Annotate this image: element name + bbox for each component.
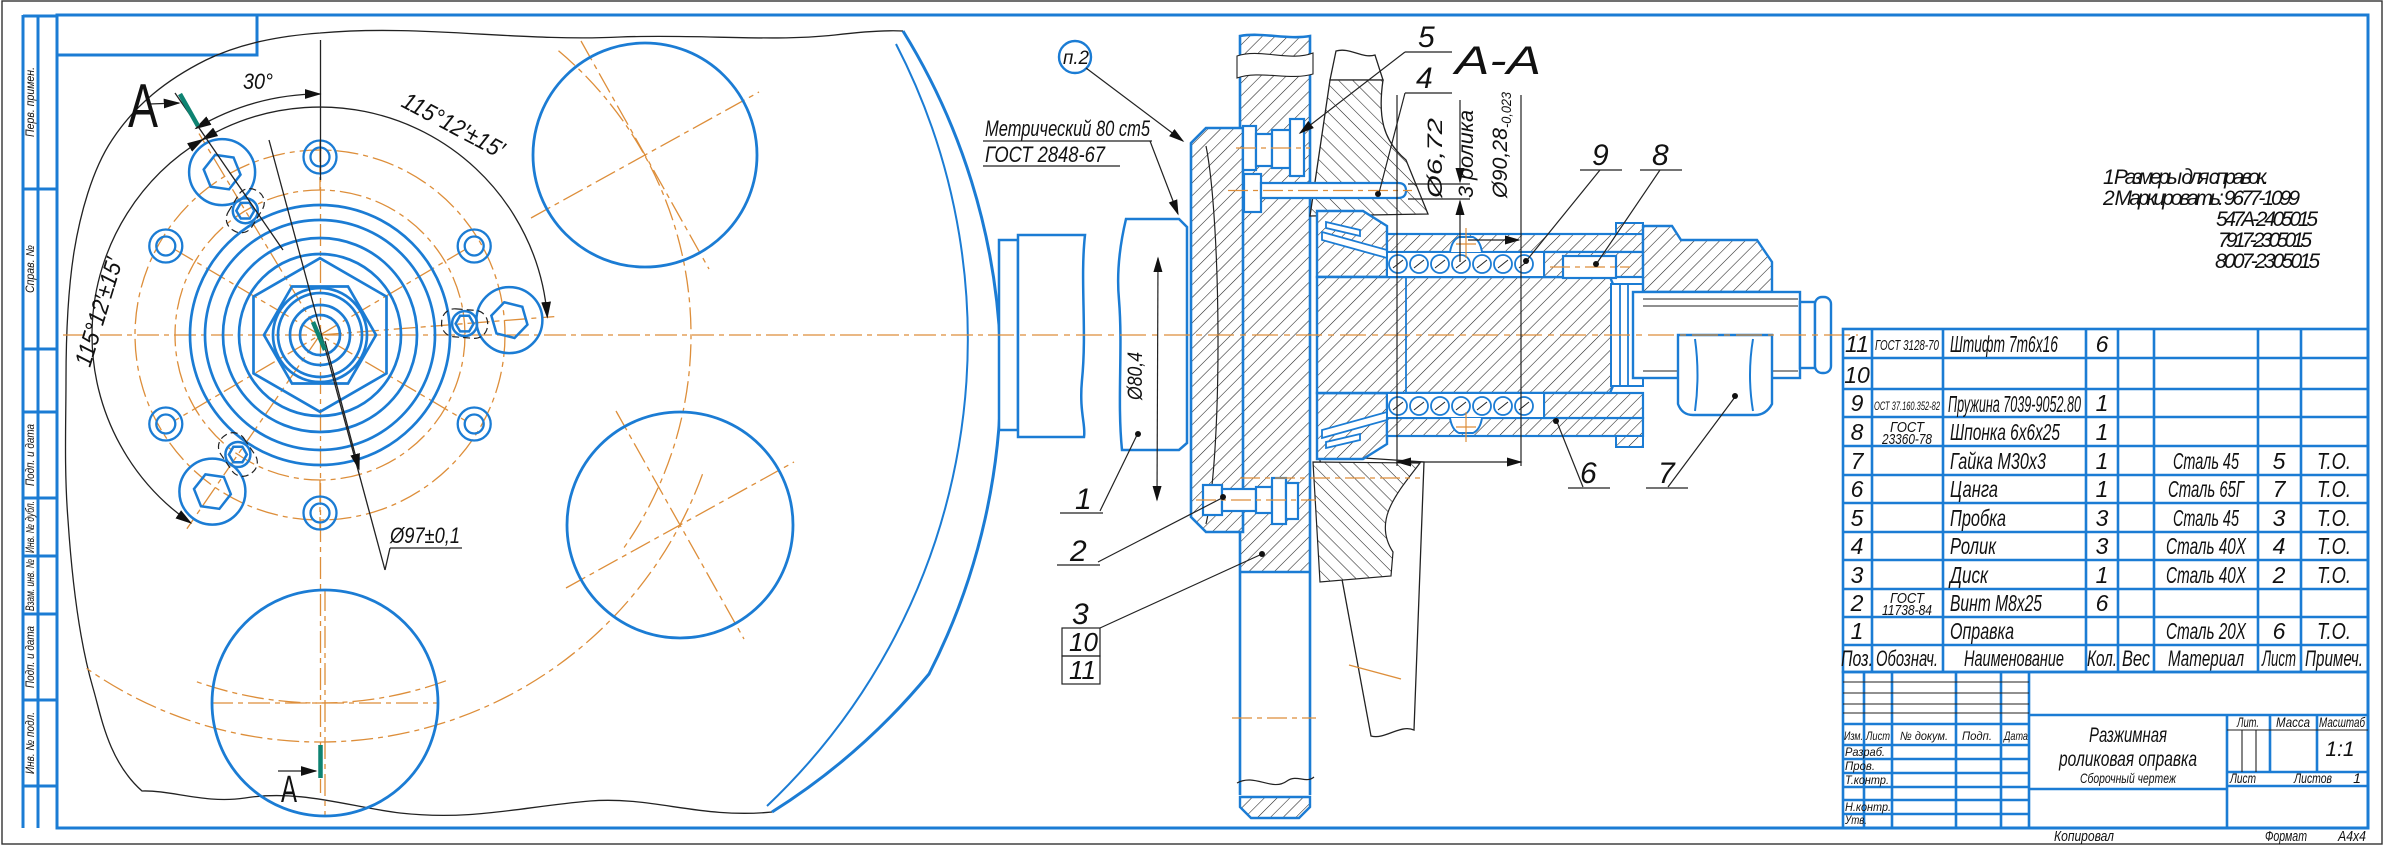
svg-text:6: 6	[2273, 618, 2286, 644]
svg-text:Сталь 40Х: Сталь 40Х	[2166, 533, 2247, 559]
svg-text:А4х4: А4х4	[2337, 828, 2366, 845]
svg-text:Сталь 65Г: Сталь 65Г	[2168, 476, 2245, 502]
svg-text:7: 7	[2273, 476, 2287, 502]
svg-text:1: 1	[2096, 419, 2109, 445]
svg-text:A: A	[128, 72, 158, 141]
svg-text:Т.О.: Т.О.	[2317, 562, 2351, 588]
svg-text:5: 5	[2273, 448, 2286, 474]
svg-text:2: 2	[1069, 535, 1087, 568]
svg-text:9: 9	[1592, 139, 1609, 172]
svg-text:Метрический 80 ст5: Метрический 80 ст5	[985, 116, 1151, 141]
svg-text:2: 2	[2272, 562, 2286, 588]
svg-text:Сталь 20Х: Сталь 20Х	[2166, 618, 2247, 644]
svg-text:11: 11	[1069, 655, 1096, 685]
svg-text:Пружина 7039-9052.80: Пружина 7039-9052.80	[1948, 391, 2081, 417]
svg-text:Лист: Лист	[2229, 770, 2256, 786]
svg-text:Наименование: Наименование	[1964, 646, 2064, 671]
svg-text:ОСТ 37.160.352-82: ОСТ 37.160.352-82	[1874, 399, 1940, 413]
svg-text:8: 8	[1851, 419, 1864, 445]
svg-text:Подп. и дата: Подп. и дата	[25, 424, 37, 486]
svg-text:Масштаб: Масштаб	[2319, 714, 2366, 730]
svg-text:Взам. инв. №: Взам. инв. №	[25, 559, 37, 611]
svg-text:1: 1	[2096, 390, 2109, 416]
svg-text:4: 4	[2273, 533, 2286, 559]
svg-text:№ докум.: № докум.	[1900, 729, 1948, 743]
svg-text:3: 3	[1851, 562, 1864, 588]
svg-text:Пробка: Пробка	[1950, 505, 2006, 531]
svg-text:Штифт 7т6х16: Штифт 7т6х16	[1950, 331, 2058, 357]
svg-text:ГОСТ 2848-67: ГОСТ 2848-67	[985, 142, 1106, 167]
svg-text:1: 1	[2353, 770, 2361, 786]
svg-text:Оправка: Оправка	[1950, 618, 2014, 644]
svg-text:Т.О.: Т.О.	[2317, 533, 2351, 559]
svg-text:Перв. примен.: Перв. примен.	[25, 67, 37, 137]
svg-text:Материал: Материал	[2168, 646, 2244, 671]
svg-text:Кол.: Кол.	[2087, 646, 2117, 671]
svg-text:Дата: Дата	[2002, 729, 2028, 743]
svg-text:Шпонка 6х6х25: Шпонка 6х6х25	[1950, 419, 2060, 445]
svg-text:Лист: Лист	[2261, 646, 2296, 671]
svg-text:1: 1	[1075, 483, 1092, 516]
svg-text:роликовая оправка: роликовая оправка	[2058, 748, 2197, 771]
svg-text:5: 5	[1418, 21, 1435, 54]
svg-text:Обознач.: Обознач.	[1876, 646, 1938, 671]
svg-text:Гайка М30х3: Гайка М30х3	[1950, 448, 2046, 474]
svg-text:2: 2	[1850, 590, 1864, 616]
svg-text:11738-84: 11738-84	[1882, 602, 1932, 619]
svg-text:Винт М8х25: Винт М8х25	[1950, 590, 2042, 616]
svg-text:2 Маркировать: 9677-1099: 2 Маркировать: 9677-1099	[2102, 187, 2300, 210]
svg-text:Справ. №: Справ. №	[25, 245, 37, 293]
svg-text:Цанга: Цанга	[1950, 476, 1998, 502]
svg-text:6: 6	[2096, 590, 2109, 616]
svg-text:23360-78: 23360-78	[1881, 431, 1932, 448]
svg-text:1: 1	[2096, 562, 2109, 588]
svg-text:Сталь 40Х: Сталь 40Х	[2166, 562, 2247, 588]
svg-text:Ø80,4: Ø80,4	[1124, 352, 1147, 401]
svg-text:1: 1	[1851, 618, 1864, 644]
svg-text:Т.О.: Т.О.	[2317, 448, 2351, 474]
svg-text:Ø97±0,1: Ø97±0,1	[389, 523, 460, 548]
svg-text:Примеч.: Примеч.	[2305, 646, 2363, 671]
svg-text:6: 6	[1580, 457, 1597, 490]
svg-text:3: 3	[2096, 533, 2109, 559]
svg-text:7: 7	[1851, 448, 1865, 474]
svg-text:10: 10	[1069, 627, 1098, 657]
svg-text:30°: 30°	[243, 69, 273, 94]
svg-text:3: 3	[2273, 505, 2286, 531]
svg-text:1:1: 1:1	[2325, 738, 2354, 761]
svg-text:А-А: А-А	[1452, 39, 1541, 83]
svg-text:3 ролика: 3 ролика	[1455, 110, 1478, 198]
svg-text:Ø6,72: Ø6,72	[1424, 118, 1447, 200]
svg-text:11: 11	[1845, 331, 1869, 357]
svg-text:Пров.: Пров.	[1845, 759, 1875, 773]
svg-text:10: 10	[1844, 362, 1870, 388]
svg-text:Ролик: Ролик	[1950, 533, 1997, 559]
svg-text:8: 8	[1652, 139, 1669, 172]
svg-text:8007-2305015: 8007-2305015	[2215, 250, 2320, 273]
svg-text:1 Размеры для справок.: 1 Размеры для справок.	[2103, 166, 2269, 189]
svg-text:4: 4	[1851, 533, 1864, 559]
svg-text:1: 1	[2096, 448, 2109, 474]
svg-text:6: 6	[1851, 476, 1864, 502]
svg-text:5: 5	[1851, 505, 1864, 531]
svg-text:Подп.: Подп.	[1962, 729, 1992, 743]
svg-text:6: 6	[2096, 331, 2109, 357]
svg-text:Т.О.: Т.О.	[2317, 618, 2351, 644]
svg-text:Формат: Формат	[2265, 828, 2307, 845]
svg-text:Лит.: Лит.	[2236, 714, 2259, 730]
svg-text:Разжимная: Разжимная	[2089, 724, 2167, 747]
svg-text:Поз.: Поз.	[1841, 646, 1873, 671]
svg-text:Изм.: Изм.	[1844, 729, 1863, 743]
svg-text:Т.контр.: Т.контр.	[1845, 773, 1889, 787]
svg-text:Листов: Листов	[2293, 770, 2332, 786]
svg-text:Вес: Вес	[2122, 646, 2150, 671]
svg-text:Масса: Масса	[2276, 714, 2310, 730]
svg-text:7917-2305015: 7917-2305015	[2218, 229, 2312, 252]
svg-text:Сталь 45: Сталь 45	[2173, 448, 2239, 474]
svg-text:Инв. № подл.: Инв. № подл.	[25, 712, 37, 774]
svg-text:7: 7	[1658, 457, 1676, 490]
svg-text:547А-2405015: 547А-2405015	[2216, 208, 2318, 231]
svg-text:4: 4	[1416, 62, 1433, 95]
svg-text:Утв.: Утв.	[1844, 813, 1867, 827]
svg-text:Т.О.: Т.О.	[2317, 505, 2351, 531]
svg-text:Инв. № дубл.: Инв. № дубл.	[25, 501, 37, 553]
svg-text:1: 1	[2096, 476, 2109, 502]
svg-text:Копировал: Копировал	[2054, 828, 2114, 845]
svg-text:3: 3	[2096, 505, 2109, 531]
svg-text:Лист: Лист	[1865, 729, 1890, 743]
svg-text:Диск: Диск	[1948, 562, 1989, 588]
svg-text:A: A	[281, 769, 297, 811]
svg-text:п.2: п.2	[1063, 48, 1089, 69]
svg-text:Сталь 45: Сталь 45	[2173, 505, 2239, 531]
svg-text:Т.О.: Т.О.	[2317, 476, 2351, 502]
svg-text:Подп. и дата: Подп. и дата	[25, 626, 37, 688]
svg-text:9: 9	[1851, 390, 1864, 416]
svg-text:Н.контр.: Н.контр.	[1845, 800, 1891, 814]
svg-text:ГОСТ 3128-70: ГОСТ 3128-70	[1875, 337, 1939, 354]
svg-text:Разраб.: Разраб.	[1845, 745, 1885, 759]
svg-text:Сборочный чертеж: Сборочный чертеж	[2080, 770, 2177, 786]
